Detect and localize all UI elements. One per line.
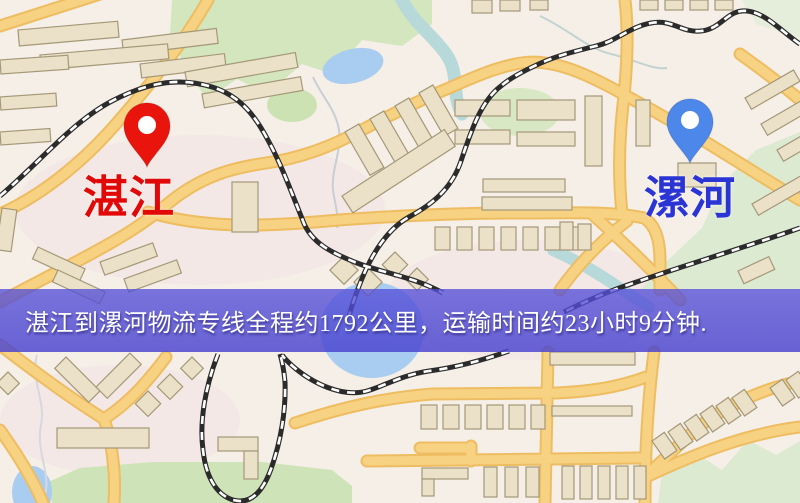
destination-label: 漯河 (644, 176, 736, 221)
logistics-route-map: 湛江 漯河 湛江到漯河物流专线全程约1792公里，运输时间约23小时9分钟. (0, 0, 800, 503)
map-background (0, 0, 800, 503)
route-info-text: 湛江到漯河物流专线全程约1792公里，运输时间约23小时9分钟. (25, 303, 707, 338)
route-info-banner: 湛江到漯河物流专线全程约1792公里，运输时间约23小时9分钟. (0, 289, 800, 352)
destination-pin-icon[interactable] (666, 98, 714, 164)
origin-label: 湛江 (83, 176, 175, 221)
origin-pin-icon[interactable] (123, 102, 171, 168)
